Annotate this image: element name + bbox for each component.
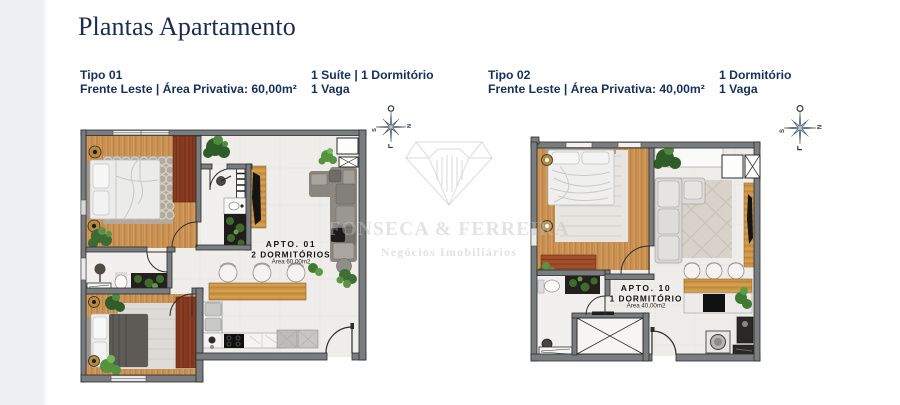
svg-text:N: N: [815, 125, 821, 129]
svg-text:S: S: [372, 128, 378, 132]
svg-text:S: S: [780, 129, 786, 133]
svg-text:APTO. 10: APTO. 10: [621, 283, 671, 293]
svg-text:Área 40,00m2: Área 40,00m2: [627, 303, 666, 310]
svg-text:N: N: [405, 124, 411, 128]
